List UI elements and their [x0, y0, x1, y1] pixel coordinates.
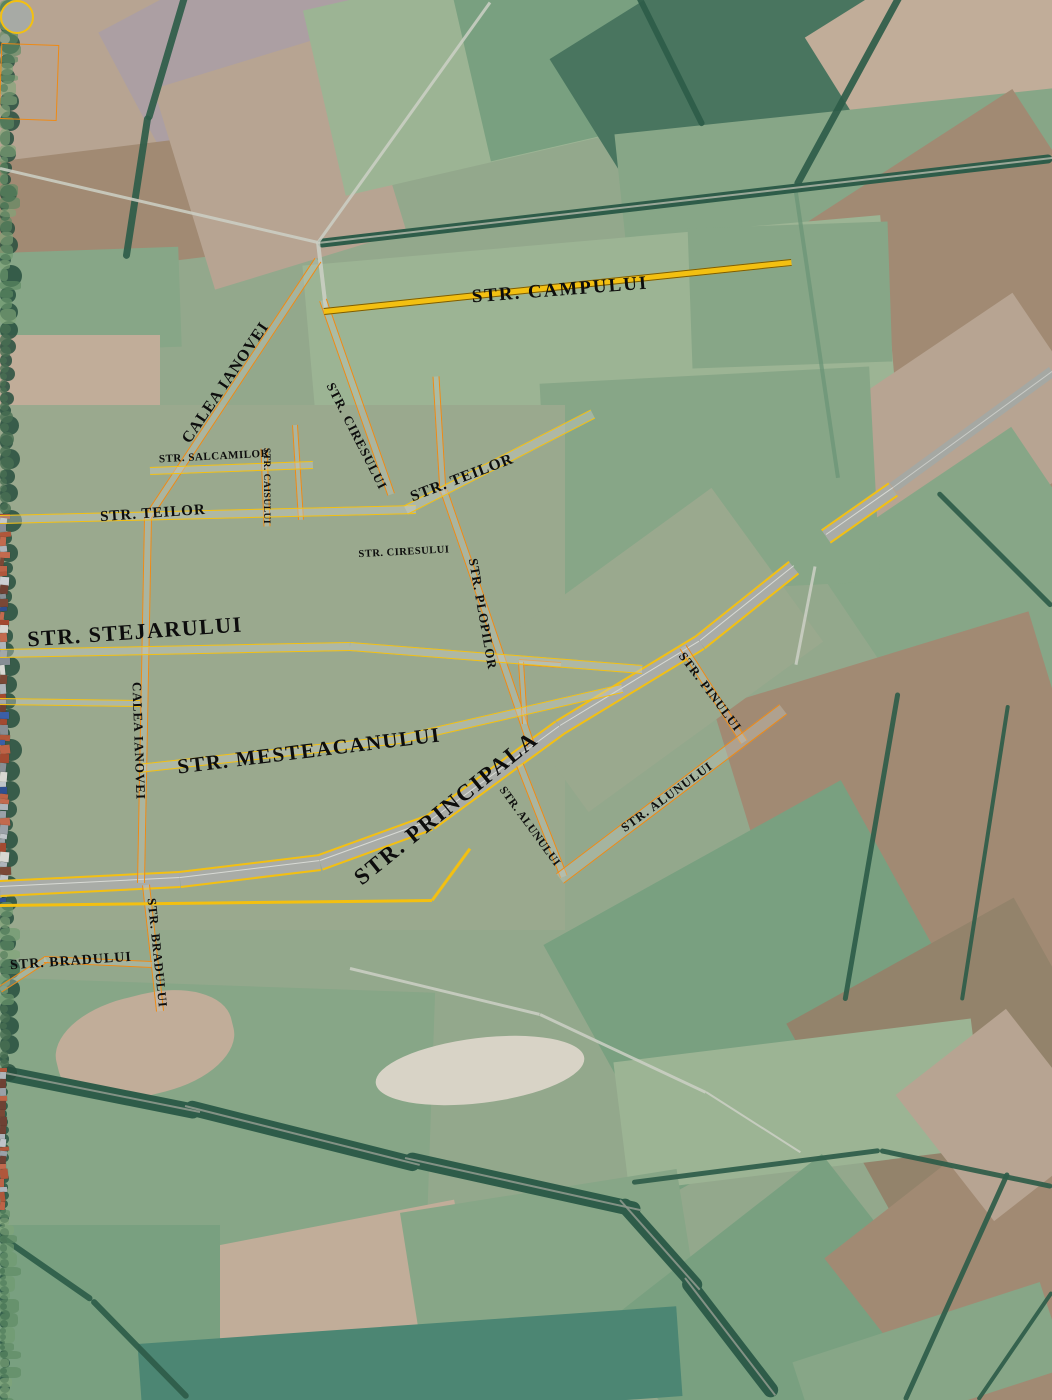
- street-label-mesteacanului: STR. MESTEACANULUI: [176, 724, 442, 777]
- street-label-campului: STR. CAMPULUI: [471, 274, 649, 307]
- street-label-teilor-west: STR. TEILOR: [100, 503, 207, 525]
- street-label-stejarului: STR. STEJARULUI: [27, 614, 244, 651]
- street-label-pinului: STR. PINULUI: [676, 650, 743, 734]
- street-label-calea-ianovei-diagonal: CALEA IANOVEI: [180, 320, 273, 447]
- street-label-ciresului-small: STR. CIRESULUI: [358, 545, 449, 560]
- street-label-teilor-east: STR. TEILOR: [408, 451, 515, 505]
- street-label-alunului-vertical: STR. ALUNULUI: [496, 785, 561, 869]
- street-label-ciresului-diagonal: STR. CIRESULUI: [324, 380, 389, 491]
- street-labels-layer: STR. CAMPULUI CALEA IANOVEI STR. CIRESUL…: [0, 0, 1052, 1400]
- street-label-bradului-horizontal: STR. BRADULUI: [10, 951, 133, 973]
- map-canvas[interactable]: STR. CAMPULUI CALEA IANOVEI STR. CIRESUL…: [0, 0, 1052, 1400]
- street-label-bradului-vertical: STR. BRADULUI: [145, 898, 169, 1009]
- street-label-alunului-diagonal: STR. ALUNULUI: [619, 760, 715, 835]
- street-label-salcamilor: STR. SALCAMILOR: [159, 449, 270, 466]
- street-label-calea-ianovei-vertical: CALEA IANOVEI: [130, 682, 147, 800]
- street-label-plopilor: STR. PLOPILOR: [467, 557, 499, 670]
- street-label-caisului: STR. CAISULUI: [260, 448, 270, 524]
